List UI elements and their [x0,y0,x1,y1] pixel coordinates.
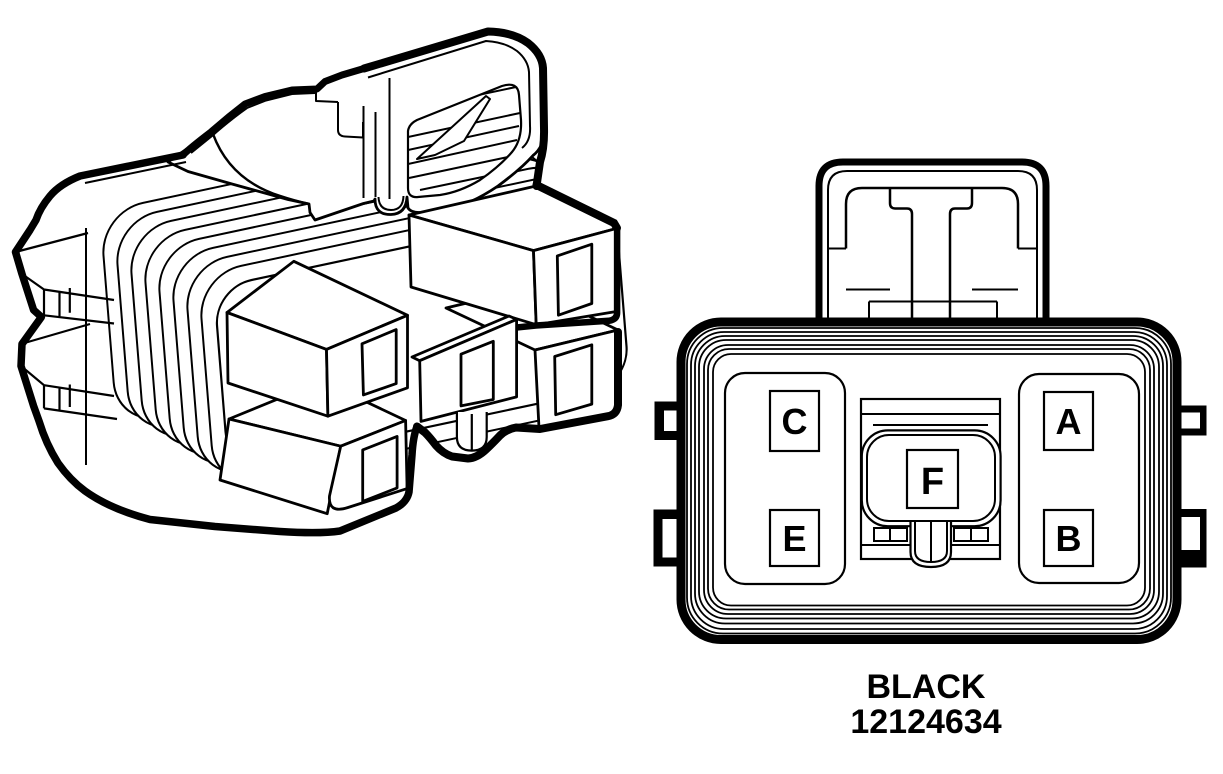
svg-text:12124634: 12124634 [850,703,1001,741]
svg-text:BLACK: BLACK [867,668,986,706]
svg-text:F: F [921,461,944,503]
svg-text:C: C [782,401,808,442]
svg-text:E: E [782,518,806,559]
svg-text:A: A [1056,401,1082,442]
svg-text:B: B [1056,518,1082,559]
